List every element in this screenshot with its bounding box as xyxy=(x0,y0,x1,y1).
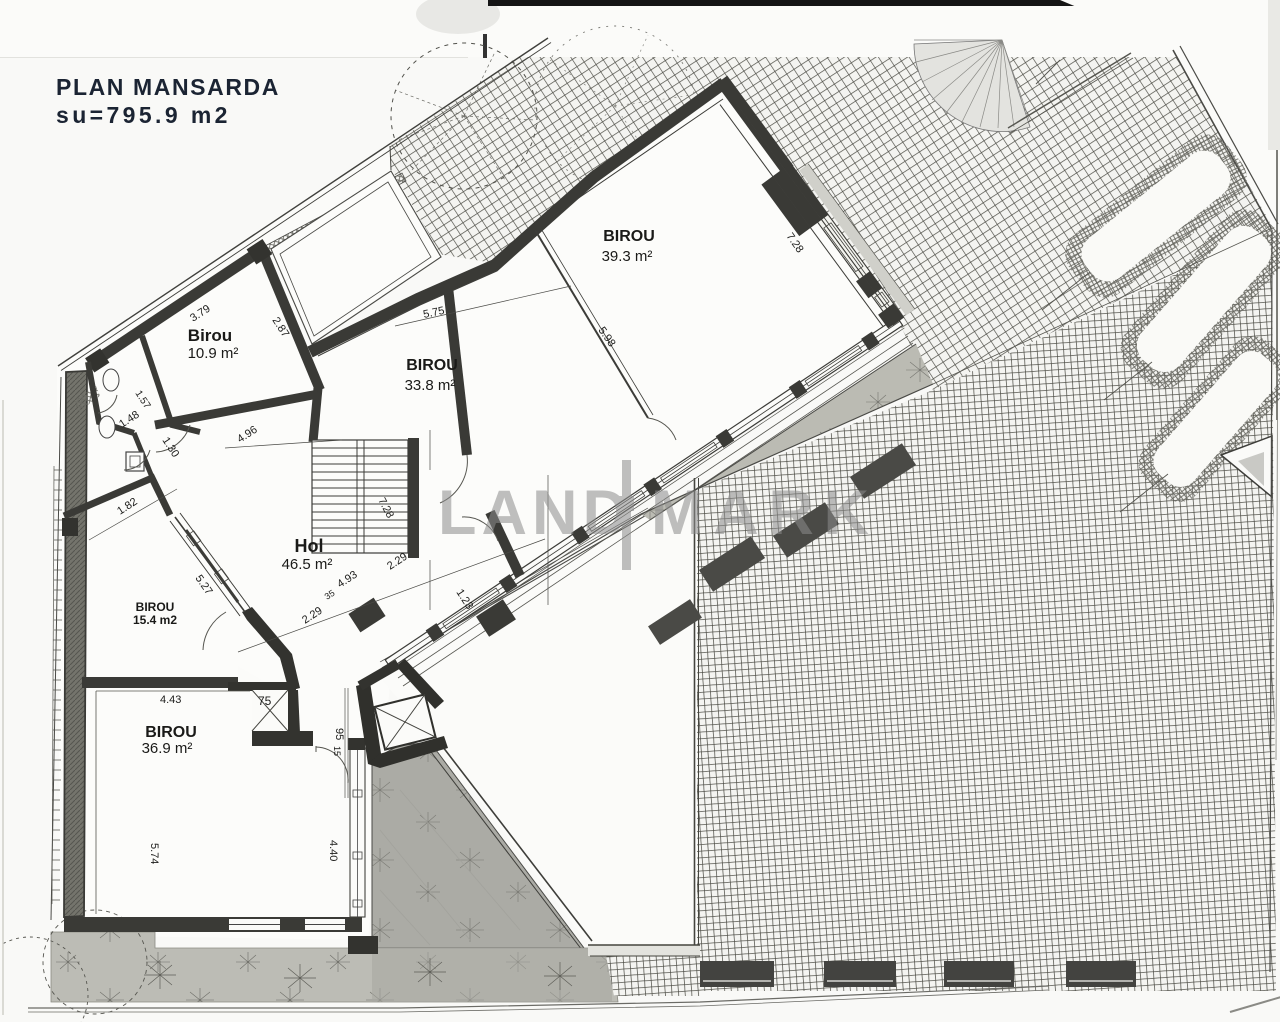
svg-text:PLAN MANSARDA: PLAN MANSARDA xyxy=(56,74,280,100)
svg-text:LAND: LAND xyxy=(438,478,628,548)
svg-text:95: 95 xyxy=(333,728,345,740)
svg-text:15.4 m2: 15.4 m2 xyxy=(133,613,177,627)
svg-text:33.8 m²: 33.8 m² xyxy=(405,377,456,394)
svg-text:Birou: Birou xyxy=(188,326,232,345)
svg-text:15: 15 xyxy=(332,746,342,756)
svg-text:4.43: 4.43 xyxy=(160,694,181,706)
svg-text:36.9 m²: 36.9 m² xyxy=(142,740,193,757)
svg-text:BIROU: BIROU xyxy=(603,228,655,245)
svg-text:BIROU: BIROU xyxy=(145,724,197,741)
svg-text:46.5 m²: 46.5 m² xyxy=(282,556,333,573)
svg-text:BIROU: BIROU xyxy=(136,600,175,614)
svg-text:BIROU: BIROU xyxy=(406,357,458,374)
svg-text:4.40: 4.40 xyxy=(327,840,339,861)
svg-text:Hol: Hol xyxy=(295,536,324,556)
svg-text:39.3 m²: 39.3 m² xyxy=(602,248,653,265)
svg-text:su=795.9 m2: su=795.9 m2 xyxy=(56,102,231,128)
svg-text:75: 75 xyxy=(258,694,272,708)
svg-text:10.9 m²: 10.9 m² xyxy=(188,345,239,362)
svg-text:5.74: 5.74 xyxy=(148,843,160,864)
